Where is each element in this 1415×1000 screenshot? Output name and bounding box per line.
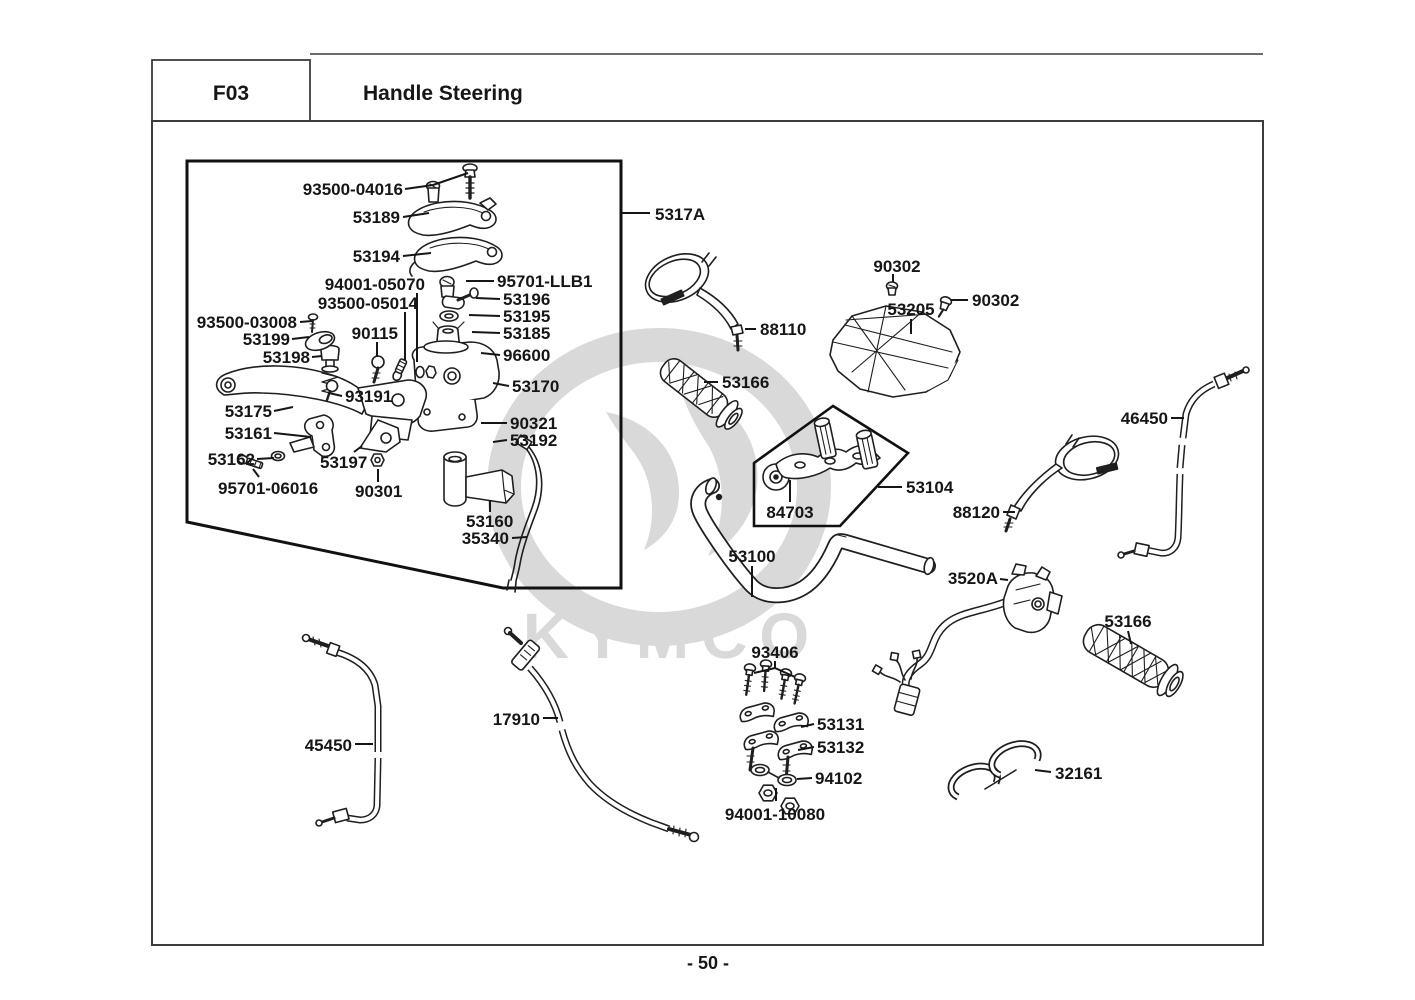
label-32161: 32161 xyxy=(1055,764,1102,783)
washers-94102 xyxy=(751,765,796,786)
label-53198: 53198 xyxy=(263,348,310,367)
label-53197: 53197 xyxy=(320,453,367,472)
label-46450: 46450 xyxy=(1121,409,1168,428)
label-94102: 94102 xyxy=(815,769,862,788)
label-88120: 88120 xyxy=(953,503,1000,522)
label-53189: 53189 xyxy=(353,208,400,227)
washer-53162 xyxy=(272,452,285,461)
page-number: - 50 - xyxy=(687,953,729,973)
label-53132: 53132 xyxy=(817,738,864,757)
wire-connector xyxy=(894,684,921,716)
label-53205: 53205 xyxy=(887,300,934,319)
washer-53195 xyxy=(440,311,458,321)
label-88110: 88110 xyxy=(760,320,806,339)
label-53170: 53170 xyxy=(512,377,559,396)
label-53131: 53131 xyxy=(817,715,864,734)
label-93406: 93406 xyxy=(751,643,798,662)
label-95701-llb1: 95701-LLB1 xyxy=(497,272,592,291)
label-53104: 53104 xyxy=(906,478,954,497)
label-53194: 53194 xyxy=(353,247,401,266)
label-53192: 53192 xyxy=(510,431,557,450)
label-45450: 45450 xyxy=(305,736,352,755)
label-93191: 93191 xyxy=(345,387,392,406)
label-90302-top: 90302 xyxy=(873,257,920,276)
label-84703: 84703 xyxy=(766,503,813,522)
handle-cover xyxy=(830,306,960,397)
handle-clamps xyxy=(738,701,813,780)
label-94001-10080: 94001-10080 xyxy=(725,805,825,824)
label-3520a: 3520A xyxy=(948,569,998,588)
screw-93500-03008 xyxy=(309,314,318,332)
label-17910: 17910 xyxy=(493,710,540,729)
label-90302-side: 90302 xyxy=(972,291,1019,310)
bolt-90115 xyxy=(372,356,384,382)
label-35340: 35340 xyxy=(462,529,509,548)
label-95701-06016: 95701-06016 xyxy=(218,479,318,498)
watermark-wing-icon-2 xyxy=(606,412,679,550)
label-5317a: 5317A xyxy=(655,205,705,224)
label-53166-left: 53166 xyxy=(722,373,769,392)
label-90115: 90115 xyxy=(352,324,398,343)
label-94001-05070: 94001-05070 xyxy=(325,275,425,294)
label-53100: 53100 xyxy=(728,547,775,566)
bolt-95701-llb1 xyxy=(440,277,454,298)
label-53162: 53162 xyxy=(208,450,255,469)
page-title: Handle Steering xyxy=(363,82,523,105)
lower-holder-53194 xyxy=(410,237,502,276)
section-code: F03 xyxy=(213,82,249,105)
cable-46450 xyxy=(1118,367,1249,558)
nut-90301 xyxy=(371,454,384,466)
label-96600: 96600 xyxy=(503,346,550,365)
bolt-94001-05070 xyxy=(391,358,408,381)
right-mirror xyxy=(1004,430,1123,531)
label-93500-05014: 93500-05014 xyxy=(318,294,419,313)
screw-93500-04016-a xyxy=(463,164,477,198)
cable-45450 xyxy=(303,635,379,827)
mirror-bolt-right xyxy=(1004,505,1020,531)
upper-holder-53189 xyxy=(409,198,496,235)
cover-screw-side xyxy=(936,295,953,318)
label-53166-right: 53166 xyxy=(1104,612,1151,631)
clips-32161 xyxy=(951,744,1038,797)
label-53161: 53161 xyxy=(225,424,272,443)
label-53199: 53199 xyxy=(243,330,290,349)
label-93500-04016: 93500-04016 xyxy=(303,180,403,199)
parts-diagram-page: KYMCO F03 Handle Steering - 50 - xyxy=(0,0,1415,1000)
label-53185: 53185 xyxy=(503,324,550,343)
label-53175: 53175 xyxy=(225,402,272,421)
cover-screw-top xyxy=(887,282,898,295)
label-90301: 90301 xyxy=(355,482,402,501)
